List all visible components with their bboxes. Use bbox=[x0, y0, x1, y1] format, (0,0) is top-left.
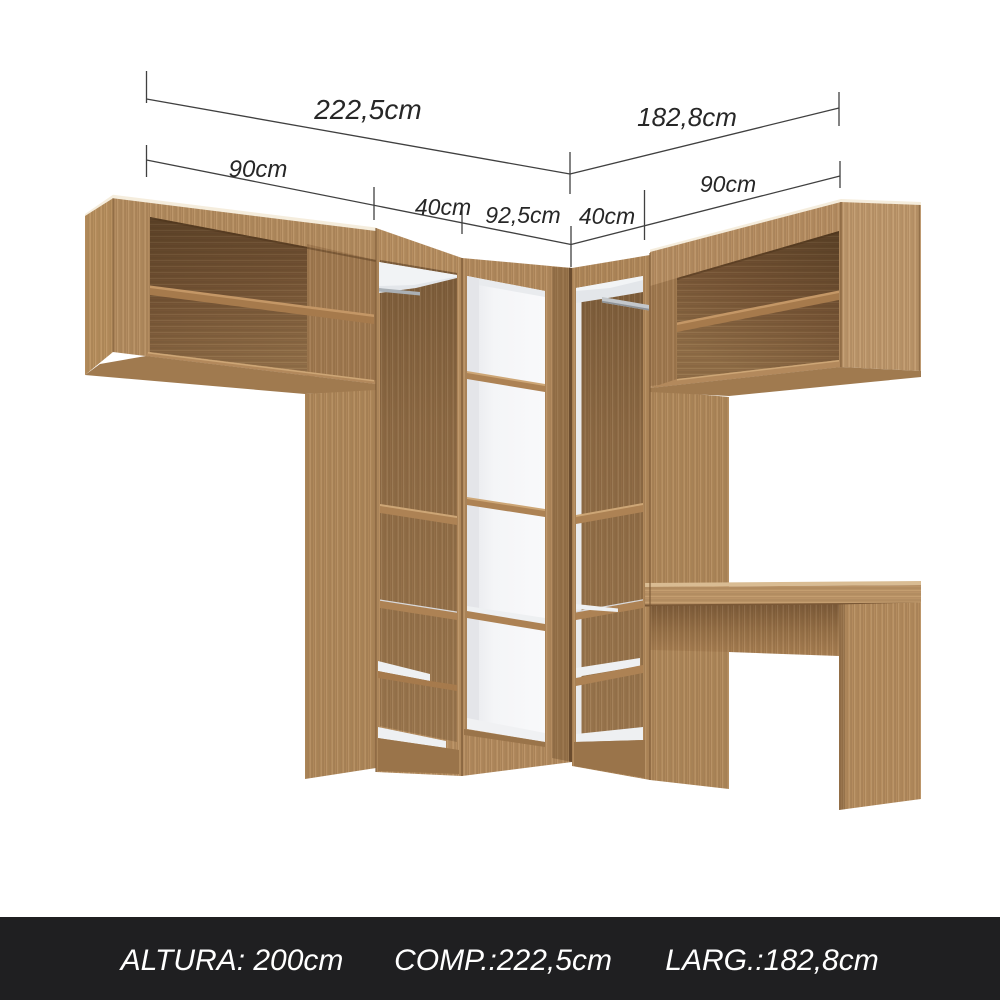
svg-text:COMP.:222,5cm: COMP.:222,5cm bbox=[394, 944, 612, 977]
svg-text:90cm: 90cm bbox=[700, 171, 756, 197]
svg-text:LARG.:182,8cm: LARG.:182,8cm bbox=[665, 944, 878, 977]
svg-text:40cm: 40cm bbox=[579, 203, 635, 229]
svg-text:ALTURA: 200cm: ALTURA: 200cm bbox=[119, 944, 344, 977]
svg-text:90cm: 90cm bbox=[229, 156, 288, 183]
svg-text:92,5cm: 92,5cm bbox=[485, 202, 560, 228]
svg-text:40cm: 40cm bbox=[415, 194, 471, 220]
svg-text:222,5cm: 222,5cm bbox=[313, 94, 421, 125]
svg-text:182,8cm: 182,8cm bbox=[637, 102, 737, 132]
